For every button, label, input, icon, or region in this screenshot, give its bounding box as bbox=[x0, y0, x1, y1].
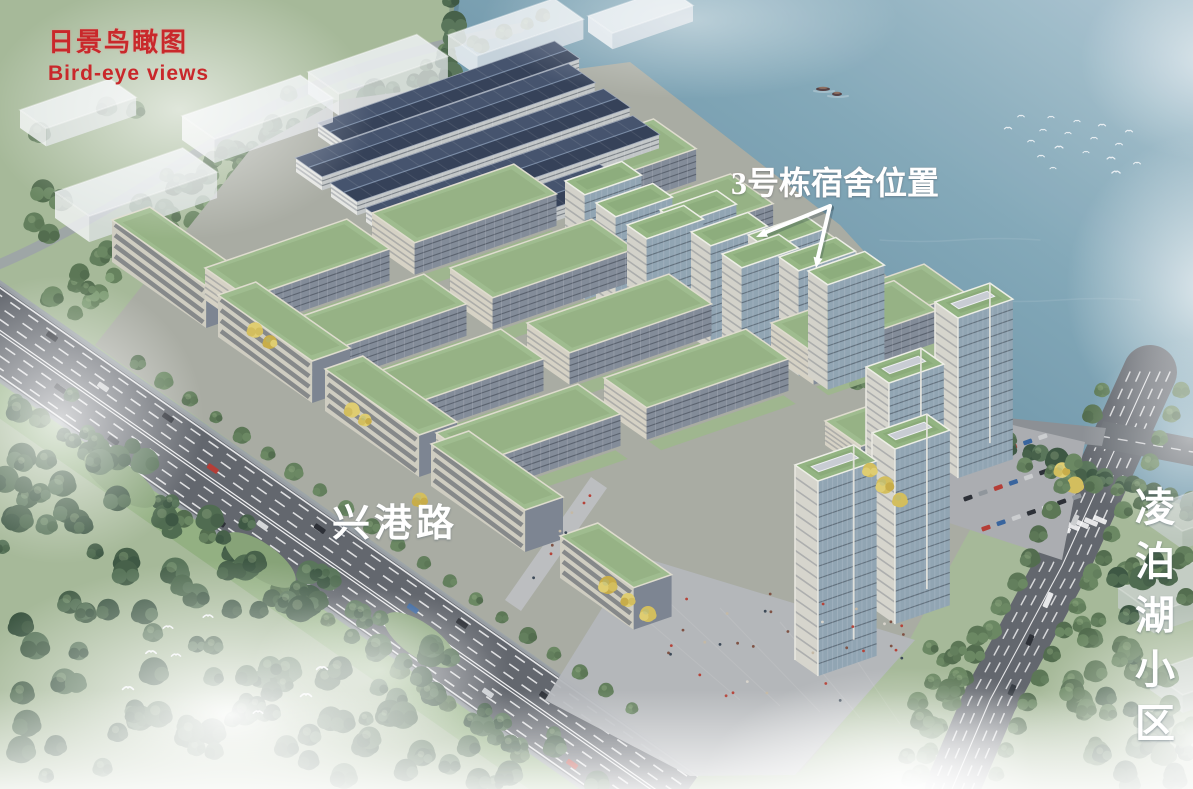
birdseye-rendering: 日景鸟瞰图 Bird-eye views 3号栋宿舍位置 兴港路 凌泊湖小区 bbox=[0, 0, 1193, 789]
aerial-rendering-canvas bbox=[0, 0, 1193, 789]
